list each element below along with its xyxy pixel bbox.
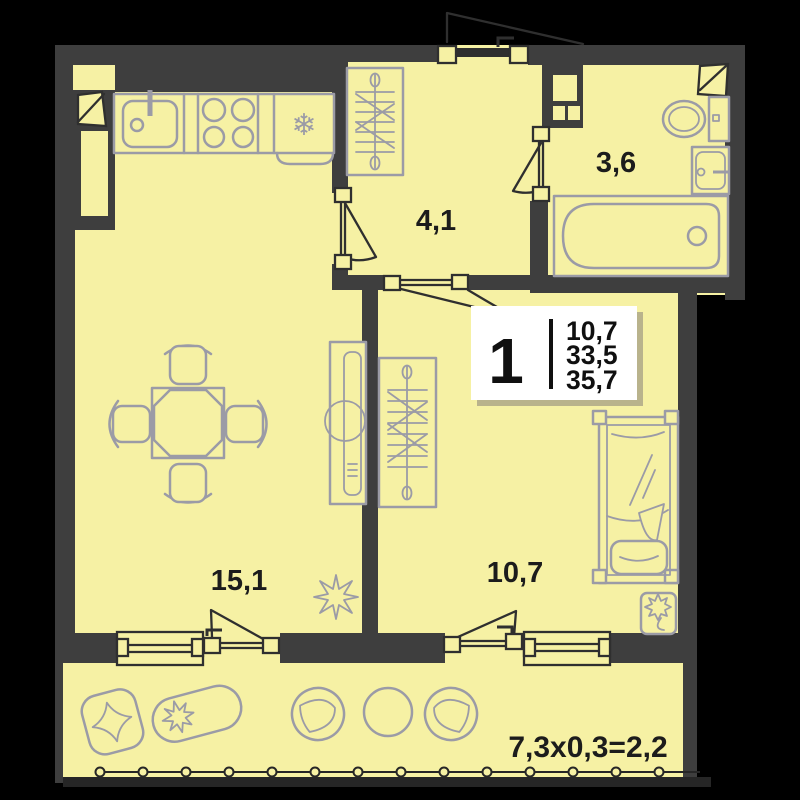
door-hinge [533,187,549,201]
wall-segment [75,633,118,663]
vent-shaft-cutout [568,106,580,120]
wall-niche [73,65,115,90]
door-hinge [506,634,522,649]
bedroom-wardrobe-icon [379,358,436,507]
door-leaf [456,48,510,57]
wall-segment [608,633,697,663]
area-label-bedroom: 10,7 [487,557,543,589]
door-hinge [444,637,460,652]
wall-segment [280,633,445,663]
dining-table-top [154,390,222,456]
chair-seat [170,464,206,502]
window-bedroom [524,632,610,665]
chair-seat [170,346,206,384]
door-hinge [335,188,351,202]
wall-segment [332,275,390,290]
door-hinge [510,46,528,63]
stats-card: 1 10,7 33,5 35,7 [471,306,643,406]
window-mullion [599,639,610,656]
bathtub [554,196,728,276]
area-label-bathroom: 3,6 [596,147,636,179]
wall-segment [332,45,438,62]
living-cabinet [325,342,366,504]
bedroom-plant-pot [641,593,676,634]
hallway-wardrobe-icon [347,68,403,175]
window-mullion [524,639,535,656]
wall-segment [55,663,63,783]
area-label-living-kitchen: 15,1 [211,565,267,597]
rooms-count: 1 [488,325,524,397]
vent-shaft-cutout [553,106,565,120]
wall-segment [683,663,697,783]
door-hinge [204,638,220,653]
stats-value: 35,7 [566,365,618,395]
bed-post [593,411,606,424]
bed-post [593,570,606,583]
chair-seat [226,406,263,442]
balcony-slab [63,777,711,787]
wall-segment [678,293,697,663]
chair-seat [113,406,150,442]
bed-icon [593,411,678,583]
wall-segment [530,275,745,293]
window-frame [524,632,610,665]
door-hinge [384,276,400,290]
bed-post [665,570,678,583]
wall-segment [55,45,75,663]
door-hinge [438,46,456,63]
window-frame [117,632,203,665]
door-hinge [335,255,351,269]
wall-niche [81,131,108,216]
window-mullion [192,639,203,656]
stats-divider [549,319,553,389]
balcony-dimensions-label: 7,3x0,3=2,2 [508,731,667,764]
window-mullion [117,639,128,656]
kitchen-counter: ❄ [114,90,334,164]
bed-post [665,411,678,424]
window-living [117,632,203,665]
wall-segment [460,275,530,290]
area-label-hallway: 4,1 [416,205,456,237]
vent-shaft-cutout [553,75,577,101]
balcony-round-chair [364,688,412,736]
door-hinge [533,127,549,141]
fridge-snowflake-icon: ❄ [291,108,316,143]
floor-plan: ❄ [0,0,800,800]
door-hinge [263,638,279,653]
door-hinge [452,275,468,289]
wall-segment [530,201,548,275]
